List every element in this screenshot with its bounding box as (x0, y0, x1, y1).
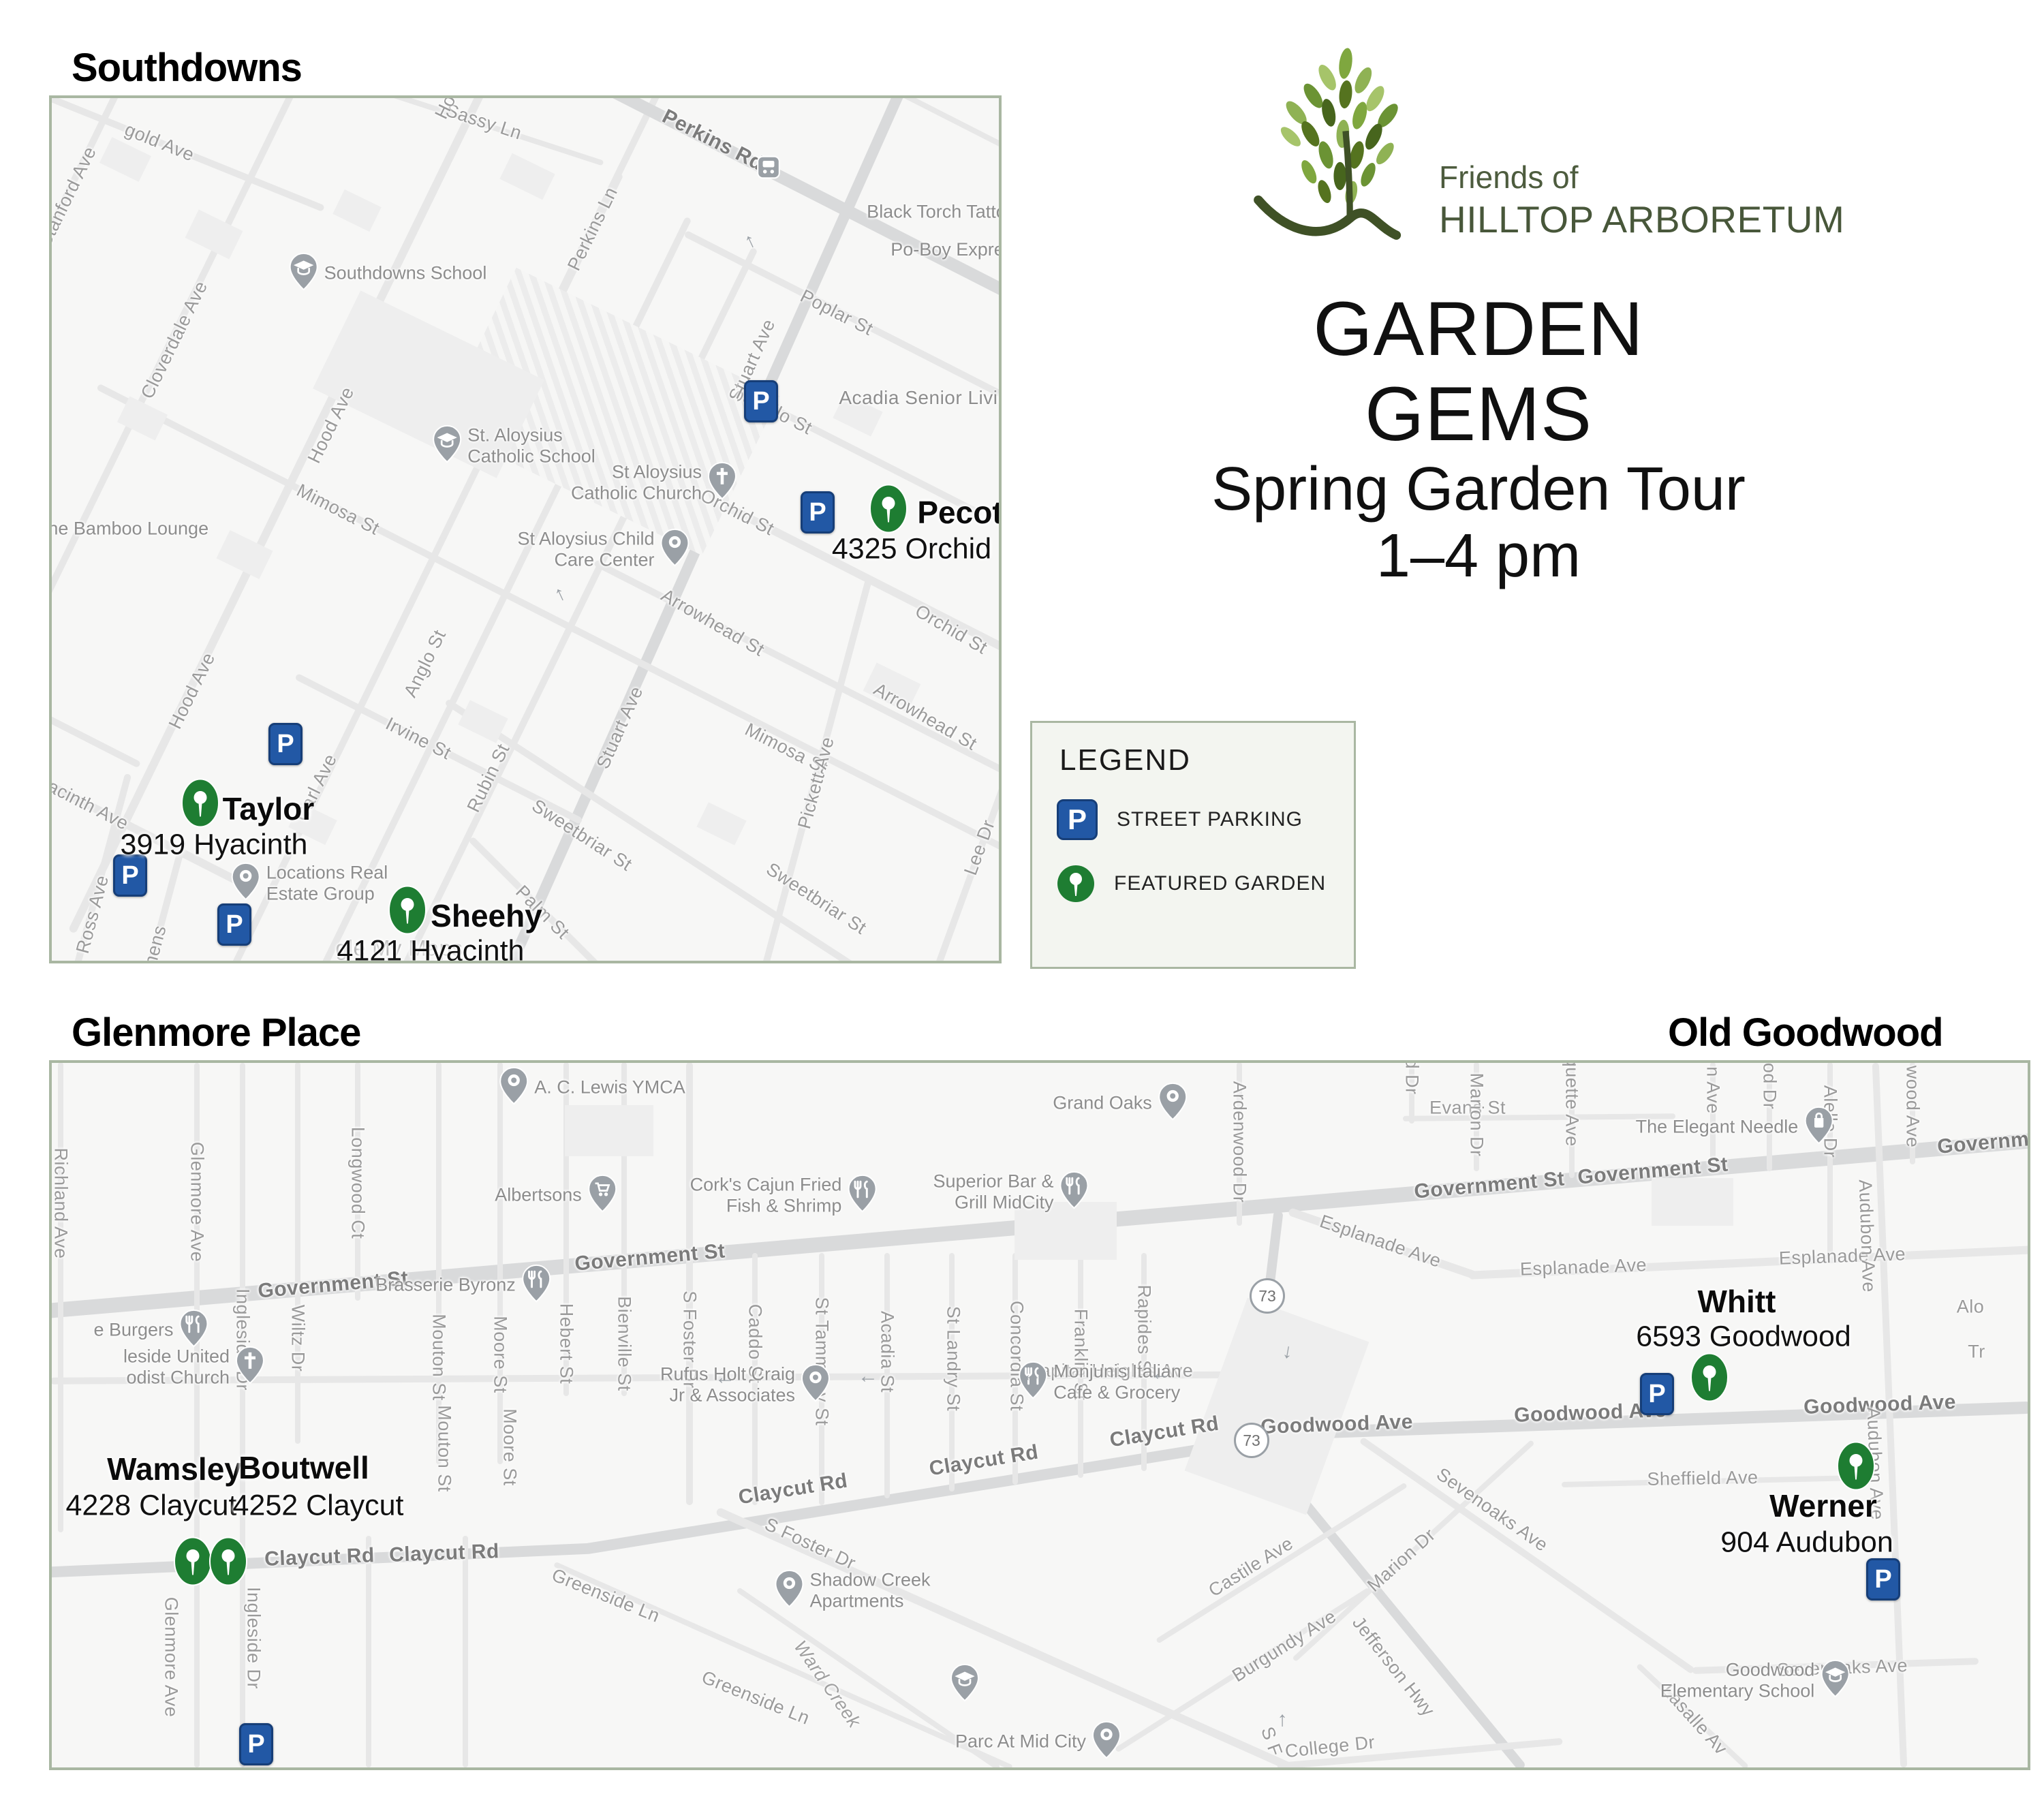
building (1652, 1178, 1733, 1226)
parking-marker: P (1866, 1558, 1900, 1600)
one-way-arrow: ↑ (741, 228, 760, 253)
one-way-arrow: ↑ (1277, 1708, 1288, 1731)
street-label: Perkins Ln (563, 184, 622, 275)
brand-hilltop-arboretum: HILLTOP ARBORETUM (1439, 198, 1844, 241)
logo-swoosh (1258, 200, 1397, 236)
street-label: Ardenwood Dr (1229, 1081, 1250, 1203)
pin-icon (801, 1364, 831, 1406)
garden-address: 4252 Claycut (233, 1489, 404, 1523)
garden-address: 904 Audubon (1720, 1526, 1893, 1560)
parking-icon: P (1057, 799, 1098, 840)
garden-marker (869, 484, 908, 538)
one-way-arrow: ← (1021, 1363, 1042, 1387)
school-icon (289, 253, 319, 294)
street-label: Sheffield Ave (1647, 1467, 1759, 1490)
street-label: Burgundy Ave (1228, 1606, 1340, 1686)
street-label: Arrowhead St (657, 585, 768, 661)
poi-label: A. C. Lewis YMCA (534, 1077, 685, 1098)
poi: Brasserie Byronz (375, 1265, 551, 1306)
street-label: Castile Ave (1205, 1533, 1297, 1602)
building (332, 189, 381, 232)
church-icon (235, 1346, 265, 1388)
parking-marker: P (1640, 1373, 1674, 1415)
one-way-arrow: ↑ (551, 581, 570, 606)
garden-name: Whitt (1698, 1283, 1776, 1320)
street-label: Stuart Ave (593, 683, 648, 773)
street-label: St Landry St (943, 1306, 964, 1412)
poi-label: Superior Bar &Grill MidCity (933, 1171, 1053, 1212)
bag-icon (1803, 1107, 1833, 1148)
poi: Grand Oaks (1053, 1083, 1188, 1124)
street-label: Glenmore Ave (187, 1142, 208, 1263)
poi-label: Albertsons (495, 1185, 582, 1205)
street-label: hens (140, 923, 171, 963)
pin-icon (660, 529, 690, 570)
street-label: Audubon Ave (1855, 1179, 1880, 1293)
street-label: Marion Dr (1363, 1524, 1440, 1596)
poi-label: Parc At Mid City (955, 1731, 1086, 1752)
one-way-arrow: ← (858, 1365, 878, 1388)
building (499, 153, 555, 200)
garden-marker (388, 885, 427, 939)
street-label: Claycut Rd (389, 1540, 500, 1567)
poi (950, 1664, 980, 1705)
garden-name: Werner (1769, 1487, 1877, 1524)
pin-icon (231, 863, 261, 904)
poi: Superior Bar &Grill MidCity (933, 1171, 1089, 1213)
poi: Po-Boy Express (891, 239, 1002, 260)
building (696, 802, 746, 845)
school-icon (1820, 1660, 1850, 1701)
hilltop-arboretum-logo (1243, 41, 1448, 252)
pin-icon (499, 1067, 529, 1109)
poi-label: e Burgers (93, 1320, 173, 1340)
poi: A. C. Lewis YMCA (499, 1067, 685, 1109)
parking-marker: P (268, 723, 303, 765)
street-label: Greenside Ln (698, 1667, 812, 1729)
poi-label: Shadow CreekApartments (809, 1570, 930, 1611)
poi-label: GoodwoodElementary School (1660, 1660, 1815, 1701)
street-label: Stanford Ave (49, 143, 101, 251)
street-label: Rubin St (463, 741, 514, 816)
road (436, 1062, 442, 1464)
cart-icon (587, 1175, 617, 1216)
street-label: Government (1936, 1125, 2030, 1159)
route-badge: 73 (1234, 1423, 1269, 1458)
street-label: Jefferson Hwy (1348, 1613, 1438, 1721)
garden-marker (181, 778, 220, 832)
poi-label: St Aloysius ChildCare Center (517, 529, 654, 570)
garden-tour-flyer: Southdowns gold AveStanford AveSassy LnH… (0, 0, 2044, 1794)
street-label: Poplar St (796, 285, 876, 340)
garden-address: 3919 Hyacinth (121, 829, 308, 862)
poi: GoodwoodElementary School (1660, 1660, 1851, 1701)
road (463, 1536, 468, 1767)
garden-address: 4325 Orchid (832, 533, 991, 566)
street-label: Esplanade Ave (1778, 1243, 1906, 1269)
street-label: Claycut Rd (264, 1544, 375, 1571)
poi-label: Southdowns School (324, 263, 487, 283)
garden-address: 6593 Goodwood (1636, 1320, 1851, 1354)
building (565, 1105, 653, 1156)
garden-name: Taylor (223, 790, 315, 827)
brand-friends-of: Friends of (1439, 159, 1579, 196)
poi: St Aloysius ChildCare Center (517, 529, 690, 570)
street-label: S Foster Dr (761, 1514, 858, 1575)
poi-label: Black Torch Tattoo (867, 202, 1002, 222)
road (366, 1536, 371, 1767)
street-label: Acadia St (877, 1311, 898, 1393)
street-label: Arrowhead St (870, 679, 980, 755)
poi: Southdowns School (289, 253, 487, 294)
road (58, 1062, 63, 1532)
legend-title: LEGEND (1059, 743, 1191, 777)
rest-icon (847, 1175, 877, 1216)
street-label: Cloverdale Ave (137, 278, 212, 403)
poi-label: Po-Boy Express (891, 239, 1002, 260)
street-label: Marion Dr (1466, 1072, 1487, 1156)
event-title-block: GARDEN GEMS Spring Garden Tour 1–4 pm (1203, 286, 1754, 592)
logo-trunk (1346, 131, 1350, 218)
road (49, 682, 141, 769)
street-label: Mimosa St (293, 480, 383, 540)
map-glenmore-old-goodwood: Government StGovernment StGovernment StG… (49, 1060, 2030, 1770)
school-icon (950, 1664, 980, 1705)
logo-leaves (1277, 47, 1402, 206)
garden-name: Sheehy (431, 897, 542, 934)
road (686, 1062, 693, 1505)
poi-label: Grand Oaks (1053, 1093, 1152, 1113)
parking-marker: P (744, 380, 778, 422)
featured-garden-icon (1057, 865, 1095, 903)
street-label: Alo (1957, 1297, 1985, 1318)
legend: LEGEND P STREET PARKING FEATURED GARDEN (1030, 721, 1356, 969)
poi-label: St AloysiusCatholic Church (571, 462, 702, 503)
legend-row-garden: FEATURED GARDEN (1057, 865, 1326, 903)
street-label: Moore St (490, 1316, 511, 1393)
poi-label: Locations RealEstate Group (266, 863, 388, 903)
street-label: Moore St (499, 1408, 521, 1486)
poi: Black Torch Tattoo (867, 191, 1002, 233)
poi (756, 155, 781, 184)
poi-label: The Bamboo Lounge (49, 519, 208, 539)
garden-address: 4121 Hyacinth (337, 935, 525, 964)
street-label: Longwood Ct (347, 1127, 369, 1239)
garden-name: Wamsley (107, 1451, 242, 1487)
street-label: Wiltz Dr (288, 1305, 309, 1372)
poi-label: The Elegant Needle (1636, 1117, 1799, 1137)
poi: The Bamboo Lounge (49, 508, 208, 550)
street-label: Greenside Ln (548, 1564, 662, 1627)
one-way-arrow: ← (1151, 1362, 1171, 1385)
street-label: od Dr (1759, 1063, 1780, 1110)
poi: Parc At Mid City (955, 1721, 1121, 1763)
street-label: Acadia Senior Living (839, 387, 1002, 409)
road (497, 1062, 503, 1464)
street-label: rquette Ave (1562, 1060, 1583, 1147)
pin-icon (1158, 1083, 1188, 1124)
garden-marker (1690, 1352, 1729, 1406)
garden-address: 4228 Claycut (66, 1489, 237, 1523)
poi: The Elegant Needle (1636, 1107, 1834, 1148)
street-label: Tr (1968, 1342, 1985, 1363)
parking-marker: P (801, 491, 835, 533)
map-title-southdowns: Southdowns (72, 45, 302, 91)
church-icon (707, 462, 737, 504)
street-label: Hebert St (556, 1303, 577, 1385)
street-label: Bienville St (614, 1296, 635, 1391)
garden-marker (1836, 1441, 1876, 1495)
garden-name: Pecot (917, 494, 1002, 531)
street-label: Mouton St (434, 1405, 455, 1492)
school-icon (432, 425, 462, 467)
street-label: Government St (574, 1239, 726, 1275)
street-label: Esplanade Ave (1519, 1254, 1647, 1280)
map-southdowns: gold AveStanford AveSassy LnHoPerkins Rd… (49, 95, 1002, 963)
road (295, 1062, 300, 1444)
street-label: Government St (1413, 1167, 1566, 1203)
legend-label-street-parking: STREET PARKING (1117, 808, 1303, 831)
poi: Rufus Holt CraigJr & Associates (660, 1364, 831, 1406)
rest-icon (1059, 1171, 1089, 1213)
pin-icon (774, 1570, 804, 1611)
poi: St AloysiusCatholic Church (571, 462, 737, 504)
parking-marker: P (217, 903, 251, 946)
poi: leside Unitedodist Church (123, 1346, 265, 1388)
event-time: 1–4 pm (1203, 521, 1754, 592)
map-title-glenmore-place: Glenmore Place (72, 1010, 360, 1055)
street-label: Mouton St (429, 1314, 450, 1401)
street-label: Anglo St (400, 627, 450, 701)
map-title-old-goodwood: Old Goodwood (1668, 1010, 1943, 1055)
poi: Albertsons (495, 1175, 617, 1216)
poi: e Burgers (93, 1310, 208, 1351)
poi: Shadow CreekApartments (774, 1570, 930, 1611)
poi: St. AloysiusCatholic School (432, 425, 595, 467)
rest-icon (179, 1310, 209, 1351)
garden-name: Boutwell (238, 1449, 369, 1486)
rest-icon (521, 1265, 551, 1306)
route-badge: 73 (1250, 1278, 1285, 1314)
street-label: Ingleside Dr (243, 1587, 264, 1689)
garden-marker (208, 1536, 248, 1590)
street-label: d Dr (1402, 1060, 1423, 1095)
street-label: St Tammany St (811, 1297, 833, 1425)
pin-icon (1091, 1721, 1121, 1763)
street-label: Perkins Rd (658, 105, 767, 176)
street-label: Esplanade Ave (1317, 1211, 1444, 1272)
event-subtitle: Spring Garden Tour (1203, 457, 1754, 522)
poi-label: leside Unitedodist Church (123, 1346, 230, 1387)
road (902, 95, 1002, 166)
building (1185, 1298, 1369, 1515)
garden-marker (173, 1536, 213, 1590)
event-title: GARDEN GEMS (1203, 286, 1754, 457)
street-label: wood Ave (1902, 1066, 1923, 1148)
bus-icon (756, 155, 781, 184)
poi-label: St. AloysiusCatholic School (467, 425, 595, 466)
poi-label: Cork's Cajun FriedFish & Shrimp (690, 1175, 842, 1216)
street-label: Richland Ave (50, 1147, 72, 1258)
poi: Cork's Cajun FriedFish & Shrimp (690, 1175, 878, 1216)
legend-label-featured-garden: FEATURED GARDEN (1114, 872, 1326, 895)
street-label: Orchid St (912, 600, 991, 658)
one-way-arrow: ← (715, 1366, 735, 1389)
poi: Locations RealEstate Group (231, 863, 388, 904)
street-label: Glenmore Ave (161, 1597, 182, 1718)
street-label: Hood Ave (165, 649, 220, 732)
poi-label: Brasserie Byronz (375, 1275, 516, 1295)
parking-marker: P (239, 1723, 273, 1765)
legend-row-parking: P STREET PARKING (1057, 799, 1303, 840)
